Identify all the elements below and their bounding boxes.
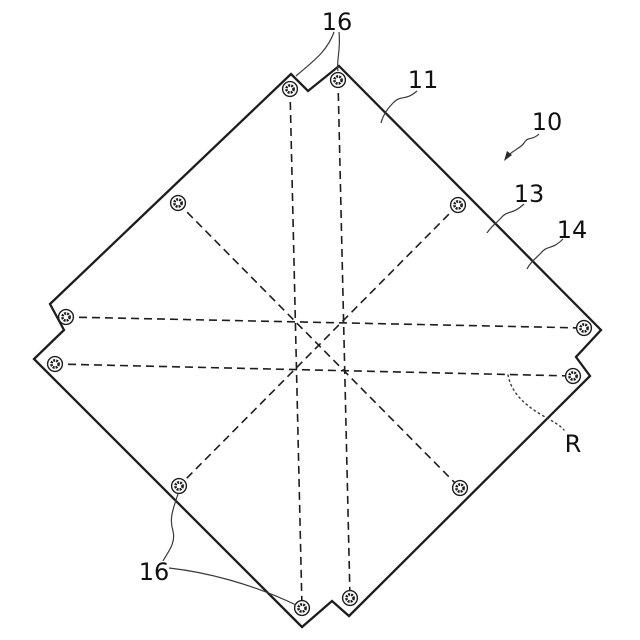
hole-top-notch-left [283, 82, 298, 97]
hole-left-notch-lower [48, 357, 63, 372]
label-16-bottom: 16 [139, 558, 170, 586]
leader-11 [381, 91, 417, 123]
hole-bottom-notch-left [295, 601, 310, 616]
figure-canvas: 1611101314R16 [0, 0, 640, 640]
leaders-group [163, 32, 564, 605]
label-11: 11 [408, 66, 439, 94]
leader-16-bottom-to-notch-hole [169, 568, 296, 605]
label-13: 13 [514, 180, 545, 208]
hole-left-notch-upper [59, 310, 74, 325]
labels-group: 1611101314R16 [139, 8, 588, 586]
hole-top-notch-right [331, 73, 346, 88]
hole-right-notch-upper [577, 321, 592, 336]
hole-interior-bottom-right [453, 481, 468, 496]
leader-16-bottom-to-interior-hole [163, 494, 178, 561]
patent-figure-page: 1611101314R16 [0, 0, 640, 640]
center-line-vertical-left [290, 89, 302, 608]
leader-R [508, 375, 564, 430]
hole-interior-top-left [171, 196, 186, 211]
label-14: 14 [557, 216, 588, 244]
hole-interior-bottom-left [172, 479, 187, 494]
label-16-top: 16 [322, 8, 353, 36]
center-line-horizontal-lower [55, 364, 573, 376]
hole-bottom-notch-right [343, 591, 358, 606]
leader-16-top-to-left-hole [296, 32, 334, 76]
center-line-horizontal-upper [66, 317, 584, 328]
hole-interior-top-right [451, 198, 466, 213]
center-line-vertical-right [338, 80, 350, 598]
label-10: 10 [532, 108, 563, 136]
leader-13 [487, 204, 524, 233]
label-R: R [565, 430, 582, 458]
hole-right-notch-lower [566, 369, 581, 384]
